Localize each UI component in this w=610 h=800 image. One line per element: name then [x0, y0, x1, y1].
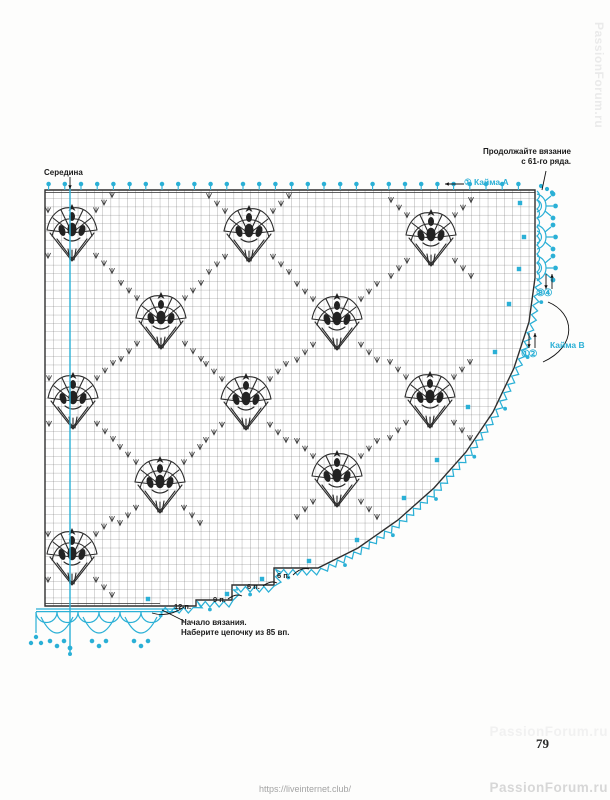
start-note-line2: Наберите цепочку из 85 вп.	[181, 628, 289, 638]
watermark-faint: PassionForum.ru	[489, 724, 608, 739]
continue-note-line2: с 61-го ряда.	[521, 157, 571, 167]
watermark-vertical: PassionForum.ru	[592, 22, 606, 128]
step-count-label: 9 п.	[213, 595, 226, 604]
step-count-label: 6 п.	[277, 571, 290, 580]
border-b-rows-1-2: ①②	[521, 349, 536, 360]
filet-grid	[45, 190, 535, 606]
start-note-line1: Начало вязания.	[181, 618, 247, 628]
magazine-page: Середина Продолжайте вязание с 61-го ряд…	[0, 0, 610, 800]
crochet-chart-diagram	[0, 0, 610, 800]
border-a-right-crowns	[537, 185, 557, 282]
border-b-rows-3-4: ③④	[536, 288, 551, 299]
watermark-bottom: PassionForum.ru	[489, 780, 608, 795]
border-a-top-picots	[47, 182, 520, 190]
border-a-label: ① Кайма A	[464, 177, 509, 187]
continue-note-line1: Продолжайте вязание	[483, 147, 571, 157]
step-count-label: 12 п.	[174, 602, 191, 611]
border-b-label: Кайма B	[550, 340, 585, 350]
center-label: Середина	[44, 168, 83, 178]
step-count-label: 6 п.	[247, 582, 260, 591]
bottom-scallop-border	[29, 609, 178, 655]
